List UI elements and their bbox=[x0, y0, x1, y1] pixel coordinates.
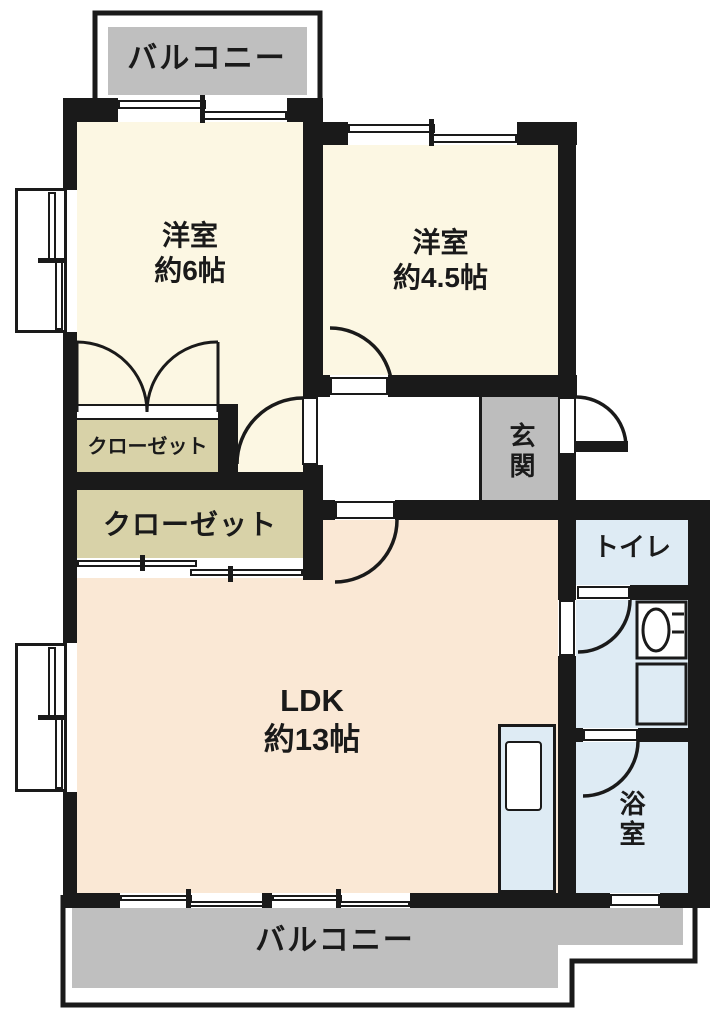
ldk-label: LDK 約13帖 bbox=[212, 682, 412, 760]
door-arc-western1 bbox=[237, 398, 303, 464]
door-arc-western2 bbox=[330, 328, 392, 390]
toilet-label: トイレ bbox=[576, 531, 688, 564]
bathroom-label: 浴室 bbox=[613, 765, 647, 875]
balcony-bottom-label: バルコニー bbox=[235, 922, 435, 960]
washbasin-icon bbox=[637, 602, 686, 658]
entry-door-leaf bbox=[576, 441, 628, 452]
balcony-top-label: バルコニー bbox=[107, 40, 307, 78]
door-arc-ldk bbox=[335, 520, 397, 582]
closet-small-label: クローゼット bbox=[77, 435, 218, 460]
room-western1-label: 洋室 約6帖 bbox=[100, 218, 280, 288]
room-name: LDK bbox=[212, 682, 412, 721]
entrance-label: 玄関 bbox=[503, 404, 537, 499]
room-area: 約6帖 bbox=[100, 253, 280, 288]
closet-large-label: クローゼット bbox=[77, 507, 303, 542]
door-arc-toilet bbox=[578, 600, 630, 652]
french-doors bbox=[77, 342, 218, 412]
door-arc-entry bbox=[576, 397, 626, 447]
room-area: 約13帖 bbox=[212, 721, 412, 760]
room-western2-label: 洋室 約4.5帖 bbox=[343, 225, 538, 295]
washer-space-icon bbox=[637, 664, 686, 724]
room-name: 洋室 bbox=[343, 225, 538, 260]
floorplan: バルコニー 洋室 約6帖 洋室 約4.5帖 クローゼット クローゼット LDK … bbox=[0, 0, 717, 1024]
room-name: 洋室 bbox=[100, 218, 280, 253]
room-area: 約4.5帖 bbox=[343, 260, 538, 295]
